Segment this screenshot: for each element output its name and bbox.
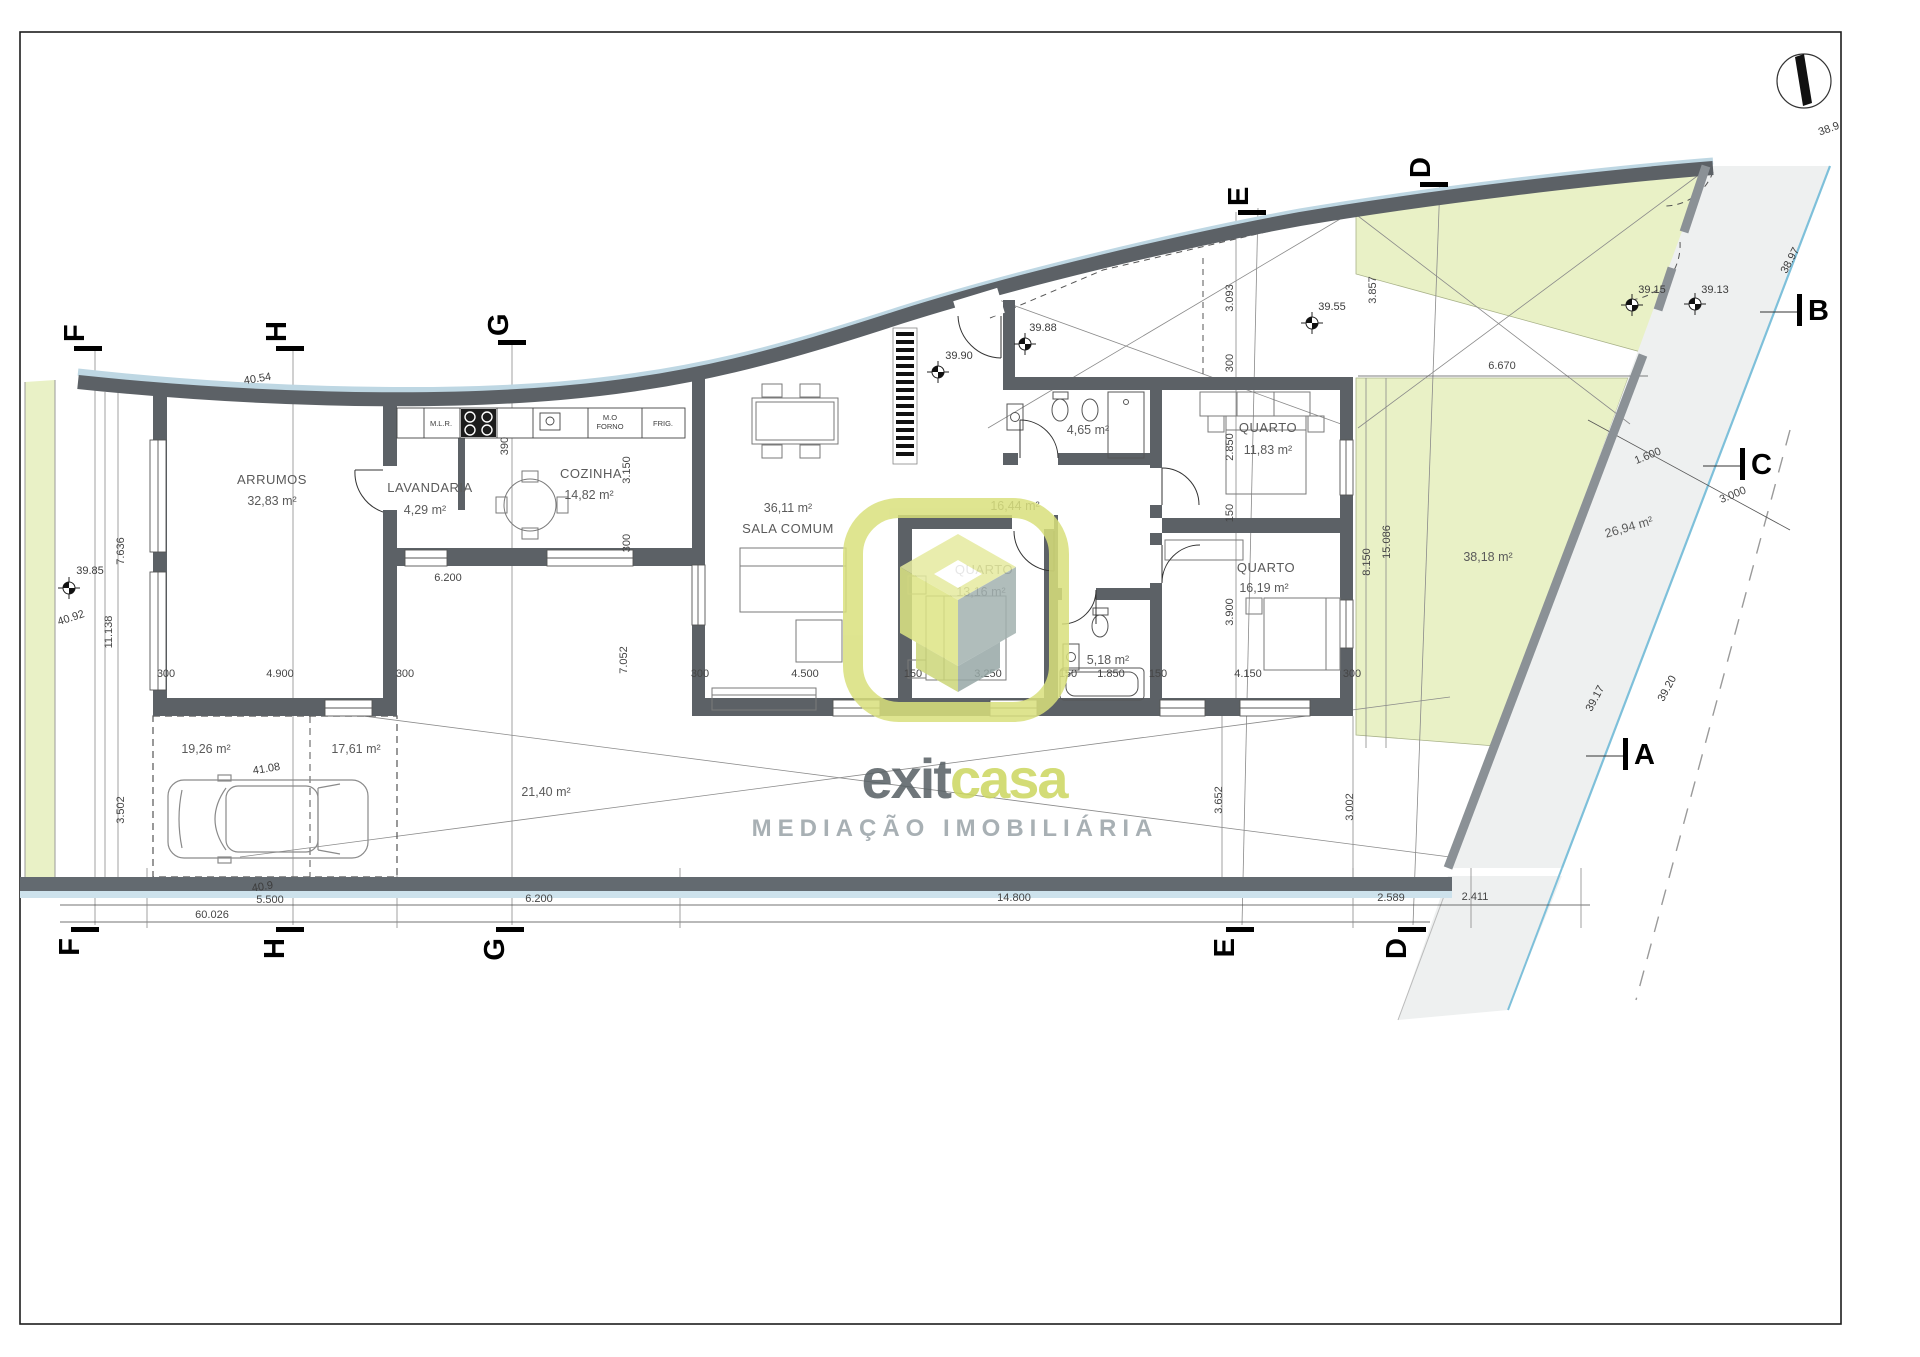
room-label: 4,29 m² [404, 503, 446, 517]
appliance-label: M.O [603, 413, 617, 422]
spot-elevation-label: 39.15 [1638, 284, 1666, 296]
svg-text:E: E [1209, 938, 1241, 957]
svg-text:C: C [1751, 449, 1772, 481]
dimension-label: 3.900 [1224, 598, 1236, 626]
dimension-label: 300 [1343, 668, 1361, 680]
dimension-label: 6.200 [525, 893, 553, 905]
outdoor-area-label: 19,26 m² [181, 742, 230, 756]
spot-elevation-label: 39.90 [945, 350, 973, 362]
room-label: 36,11 m² [764, 501, 812, 515]
watermark-brand-casa: casa [950, 747, 1069, 810]
dimension-label: 11.138 [103, 616, 115, 649]
dimension-label: 4.900 [266, 668, 294, 680]
dimension-label: 2.411 [1462, 891, 1489, 903]
room-label: 16,19 m² [1239, 581, 1288, 595]
svg-text:H: H [259, 938, 291, 959]
dimension-label: 7.636 [115, 537, 127, 565]
watermark-brand-exit: exit [862, 747, 952, 810]
svg-text:F: F [54, 938, 86, 956]
outdoor-area-label: 17,61 m² [331, 742, 380, 756]
svg-text:G: G [479, 938, 511, 961]
dimension-label: 390 [499, 437, 511, 455]
room-label: LAVANDARIA [387, 480, 472, 495]
room-label: ARRUMOS [237, 472, 307, 487]
dimension-label: 2.850 [1224, 433, 1236, 461]
dimension-label: 7.052 [618, 646, 630, 674]
svg-text:D: D [1405, 157, 1437, 178]
room-label: 11,83 m² [1244, 443, 1292, 457]
dimension-label: 300 [691, 668, 709, 680]
spot-elevation-label: 39.85 [76, 565, 104, 577]
dimension-label: 3.150 [621, 456, 633, 484]
dimension-label: 5.500 [256, 894, 284, 906]
outdoor-area-label: 38,18 m² [1463, 550, 1512, 564]
dimension-label: 6.200 [434, 572, 462, 584]
dimension-label: 3.093 [1224, 284, 1236, 312]
dimension-label: 6.670 [1488, 360, 1516, 372]
dimension-label: 150 [1149, 668, 1167, 680]
dimension-label: 3.502 [115, 796, 127, 824]
floor-plan-drawing: ARRUMOS32,83 m²LAVANDARIA4,29 m²COZINHA1… [0, 0, 1920, 1357]
dimension-label: 300 [1224, 354, 1236, 372]
exitcasa-cube-icon [900, 534, 1016, 692]
dimension-label: 4.150 [1234, 668, 1262, 680]
room-label: QUARTO [1237, 560, 1295, 575]
spot-elevation-label: 39.13 [1701, 284, 1729, 296]
dimension-label: 300 [621, 534, 633, 552]
spot-elevation-label: 39.88 [1029, 322, 1057, 334]
dimension-label: 4.500 [791, 668, 819, 680]
outdoor-area-label: 21,40 m² [521, 785, 570, 799]
room-label: QUARTO [1239, 420, 1297, 435]
svg-text:B: B [1808, 295, 1829, 327]
appliance-label: M.L.R. [430, 419, 452, 428]
dimension-label: 8.150 [1361, 548, 1373, 576]
room-label: SALA COMUM [742, 521, 834, 536]
dimension-label: 150 [1224, 504, 1236, 522]
north-arrow-icon [1777, 54, 1831, 108]
svg-text:D: D [1381, 938, 1413, 959]
svg-text:A: A [1634, 739, 1655, 771]
dimension-label: 3.652 [1213, 786, 1225, 814]
dimension-label: 15.086 [1381, 525, 1393, 559]
dimension-label: 3.857 [1367, 276, 1379, 304]
spot-elevation-label: 39.55 [1318, 301, 1346, 313]
room-label: 14,82 m² [564, 488, 613, 502]
dimension-label: 14.800 [997, 892, 1031, 904]
room-label: 32,83 m² [247, 494, 296, 508]
bottom-road [20, 877, 1452, 898]
watermark-subtitle: MEDIAÇÃO IMOBILIÁRIA [752, 814, 1159, 842]
cooktop-icon [461, 409, 496, 437]
dimension-label: 2.589 [1377, 892, 1405, 904]
room-label: 5,18 m² [1087, 653, 1129, 667]
dimension-label: 300 [157, 668, 175, 680]
left-green-verge [25, 380, 55, 877]
svg-text:G: G [483, 313, 515, 336]
room-label: 4,65 m² [1067, 423, 1109, 437]
svg-text:H: H [261, 321, 293, 342]
svg-text:F: F [59, 324, 91, 342]
svg-text:E: E [1223, 187, 1255, 206]
appliance-label: FRIG. [653, 419, 673, 428]
appliance-label: FORNO [596, 422, 623, 431]
room-label: COZINHA [560, 466, 622, 481]
dimension-label: 60.026 [195, 909, 229, 921]
architectural-floor-plan-page: ARRUMOS32,83 m²LAVANDARIA4,29 m²COZINHA1… [0, 0, 1920, 1357]
dimension-label: 3.002 [1344, 793, 1356, 821]
dimension-label: 300 [396, 668, 414, 680]
dimension-label: 1.850 [1097, 668, 1125, 680]
